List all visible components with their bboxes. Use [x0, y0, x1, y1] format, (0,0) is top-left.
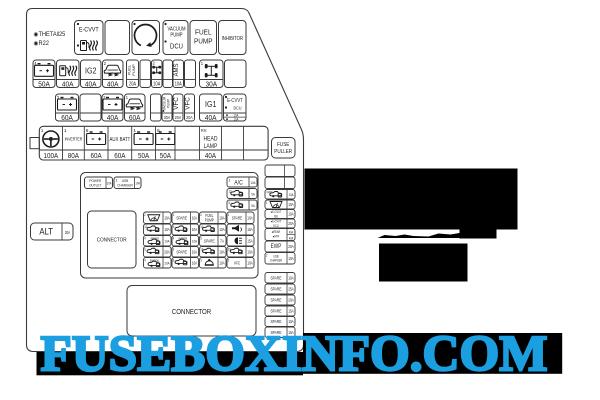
svg-text:4: 4 — [173, 236, 175, 240]
svg-text:10A: 10A — [288, 320, 294, 325]
svg-text:10A: 10A — [247, 261, 253, 266]
svg-text:HEAD: HEAD — [203, 136, 217, 143]
svg-text:10A: 10A — [219, 216, 225, 221]
svg-text:50A: 50A — [160, 153, 172, 161]
svg-text:OUTLET: OUTLET — [89, 183, 102, 187]
svg-text:CONNECTOR: CONNECTOR — [97, 237, 127, 244]
svg-text:DCU: DCU — [170, 43, 183, 51]
svg-text:SPARE: SPARE — [270, 276, 281, 280]
svg-text:40A: 40A — [289, 236, 293, 241]
svg-text:4: 4 — [144, 236, 146, 240]
svg-text:20A: 20A — [288, 222, 294, 227]
svg-text:10A: 10A — [234, 117, 239, 122]
svg-text:◉R22: ◉R22 — [34, 41, 49, 47]
svg-text:DCU: DCU — [234, 105, 242, 111]
svg-text:PUMP: PUMP — [166, 99, 170, 108]
svg-text:50A: 50A — [138, 153, 150, 161]
svg-text:VFC: VFC — [173, 97, 180, 110]
svg-text:10A: 10A — [247, 216, 253, 221]
svg-text:10A: 10A — [251, 181, 257, 186]
svg-text:20A: 20A — [129, 81, 136, 87]
svg-text:A/C: A/C — [234, 180, 243, 187]
svg-text:6: 6 — [86, 128, 89, 134]
svg-text:10A: 10A — [192, 216, 198, 221]
svg-text:100A: 100A — [44, 153, 59, 161]
svg-text:1: 1 — [41, 128, 44, 134]
svg-text:10A: 10A — [153, 81, 160, 87]
svg-text:40A: 40A — [107, 113, 119, 122]
svg-text:20A: 20A — [288, 245, 294, 250]
svg-text:10A: 10A — [219, 261, 225, 266]
svg-text:EWP: EWP — [271, 243, 282, 250]
svg-text:CHARGER: CHARGER — [117, 183, 133, 187]
svg-text:LAMP: LAMP — [204, 144, 218, 151]
svg-text:10A: 10A — [164, 228, 170, 233]
svg-text:40A: 40A — [107, 80, 119, 89]
svg-text:20A: 20A — [175, 114, 182, 120]
svg-text:PUMP: PUMP — [194, 38, 213, 46]
svg-text:50A: 50A — [38, 80, 50, 89]
svg-text:10A: 10A — [175, 81, 182, 87]
svg-text:SPARE: SPARE — [176, 250, 187, 254]
svg-text:15A: 15A — [288, 309, 294, 314]
svg-text:60A: 60A — [129, 113, 141, 122]
svg-text:20A: 20A — [65, 231, 71, 236]
svg-text:IG1: IG1 — [205, 100, 216, 109]
svg-text:40A: 40A — [205, 153, 217, 161]
svg-text:80A: 80A — [68, 153, 80, 161]
svg-text:E-CVVT: E-CVVT — [79, 27, 99, 34]
svg-text:INHIBITOR: INHIBITOR — [222, 36, 244, 43]
svg-text:5A: 5A — [251, 204, 255, 209]
svg-text:15A: 15A — [247, 239, 253, 244]
svg-text:PUMP: PUMP — [131, 64, 136, 76]
svg-text:10A: 10A — [192, 228, 198, 233]
svg-text:20A: 20A — [164, 250, 170, 255]
svg-text:1: 1 — [228, 212, 230, 216]
svg-text:AUX BATT: AUX BATT — [110, 136, 131, 143]
svg-text:10A: 10A — [219, 250, 225, 255]
svg-text:40A: 40A — [62, 80, 74, 89]
svg-text:2: 2 — [144, 212, 146, 216]
svg-text:60A: 60A — [114, 153, 126, 161]
svg-text:SPARE: SPARE — [204, 239, 215, 243]
svg-text:FUSE: FUSE — [277, 142, 290, 149]
svg-text:10A: 10A — [192, 239, 198, 244]
svg-text:PUMP: PUMP — [205, 218, 215, 222]
svg-text:40A: 40A — [289, 230, 293, 235]
svg-text:CONNECTOR: CONNECTOR — [172, 309, 211, 317]
svg-text:2: 2 — [200, 212, 202, 216]
svg-text:10A: 10A — [219, 228, 225, 233]
svg-text:10A: 10A — [135, 181, 140, 186]
svg-text:CHARGER: CHARGER — [270, 258, 282, 262]
svg-text:3: 3 — [200, 258, 202, 262]
svg-text:2: 2 — [266, 253, 268, 257]
svg-text:25A: 25A — [288, 287, 294, 292]
svg-text:SPARE: SPARE — [270, 320, 281, 324]
svg-text:20A: 20A — [165, 261, 171, 266]
svg-text:3: 3 — [173, 247, 175, 251]
svg-text:20A: 20A — [107, 181, 112, 186]
svg-text:1: 1 — [266, 200, 268, 204]
svg-text:30A: 30A — [164, 114, 171, 120]
svg-text:AMS: AMS — [174, 63, 180, 76]
svg-text:SPARE: SPARE — [176, 216, 187, 220]
svg-text:10A: 10A — [288, 212, 294, 217]
svg-text:5: 5 — [200, 236, 202, 240]
svg-text:40A: 40A — [85, 80, 97, 89]
svg-text:DCU: DCU — [273, 224, 278, 228]
svg-text:10A: 10A — [288, 203, 294, 208]
svg-text:GRID: GRID — [267, 190, 273, 194]
svg-text:SPARE: SPARE — [270, 309, 281, 313]
svg-text:4: 4 — [144, 258, 146, 262]
svg-text:SPARE: SPARE — [270, 287, 281, 291]
svg-text:FUEL: FUEL — [195, 29, 212, 37]
svg-text:E-CVVT: E-CVVT — [227, 98, 243, 105]
svg-text:9: 9 — [173, 258, 175, 262]
svg-text:10A: 10A — [165, 239, 171, 244]
svg-text:VFC: VFC — [185, 97, 192, 110]
svg-text:PUMP: PUMP — [170, 32, 182, 37]
svg-text:PULLER: PULLER — [274, 149, 292, 156]
svg-text:RH: RH — [201, 128, 206, 133]
svg-text:3: 3 — [228, 258, 230, 262]
svg-text:INVERTER: INVERTER — [65, 136, 83, 142]
svg-text:20A: 20A — [186, 114, 193, 120]
svg-text:9: 9 — [173, 224, 175, 228]
svg-text:VFC: VFC — [234, 261, 241, 265]
svg-text:30A: 30A — [205, 80, 217, 89]
svg-text:FUSEBOXINFO.COM: FUSEBOXINFO.COM — [41, 326, 548, 382]
svg-text:15A: 15A — [247, 228, 253, 233]
svg-text:IG2: IG2 — [85, 66, 96, 75]
svg-text:60A: 60A — [91, 153, 103, 161]
svg-text:2: 2 — [173, 212, 175, 216]
svg-text:ISU: ISU — [274, 214, 278, 218]
svg-text:5: 5 — [229, 201, 231, 205]
svg-text:1: 1 — [133, 128, 136, 134]
svg-text:1: 1 — [116, 179, 118, 183]
svg-text:◉THETA‖25: ◉THETA‖25 — [34, 32, 67, 38]
svg-text:10A: 10A — [288, 256, 294, 261]
svg-text:10A: 10A — [247, 250, 253, 255]
svg-text:10A: 10A — [192, 261, 198, 266]
svg-text:●HTR: ●HTR — [273, 234, 280, 238]
svg-text:1: 1 — [229, 179, 231, 183]
svg-text:6: 6 — [144, 247, 146, 251]
svg-text:10A: 10A — [192, 250, 198, 255]
svg-text:7A: 7A — [220, 239, 224, 244]
svg-text:VACUUM: VACUUM — [167, 26, 185, 31]
svg-text:10A: 10A — [288, 276, 294, 281]
svg-text:10A: 10A — [289, 193, 295, 198]
svg-text:5A: 5A — [251, 192, 255, 197]
svg-text:5: 5 — [157, 128, 160, 134]
svg-text:1: 1 — [64, 128, 67, 134]
svg-text:40A: 40A — [205, 113, 217, 122]
svg-text:SPARE: SPARE — [270, 298, 281, 302]
svg-text:10A: 10A — [164, 216, 170, 221]
svg-text:60A: 60A — [61, 113, 73, 122]
svg-text:SPARE: SPARE — [232, 216, 243, 220]
svg-text:20A: 20A — [288, 298, 294, 303]
svg-text:ALT: ALT — [39, 226, 53, 237]
